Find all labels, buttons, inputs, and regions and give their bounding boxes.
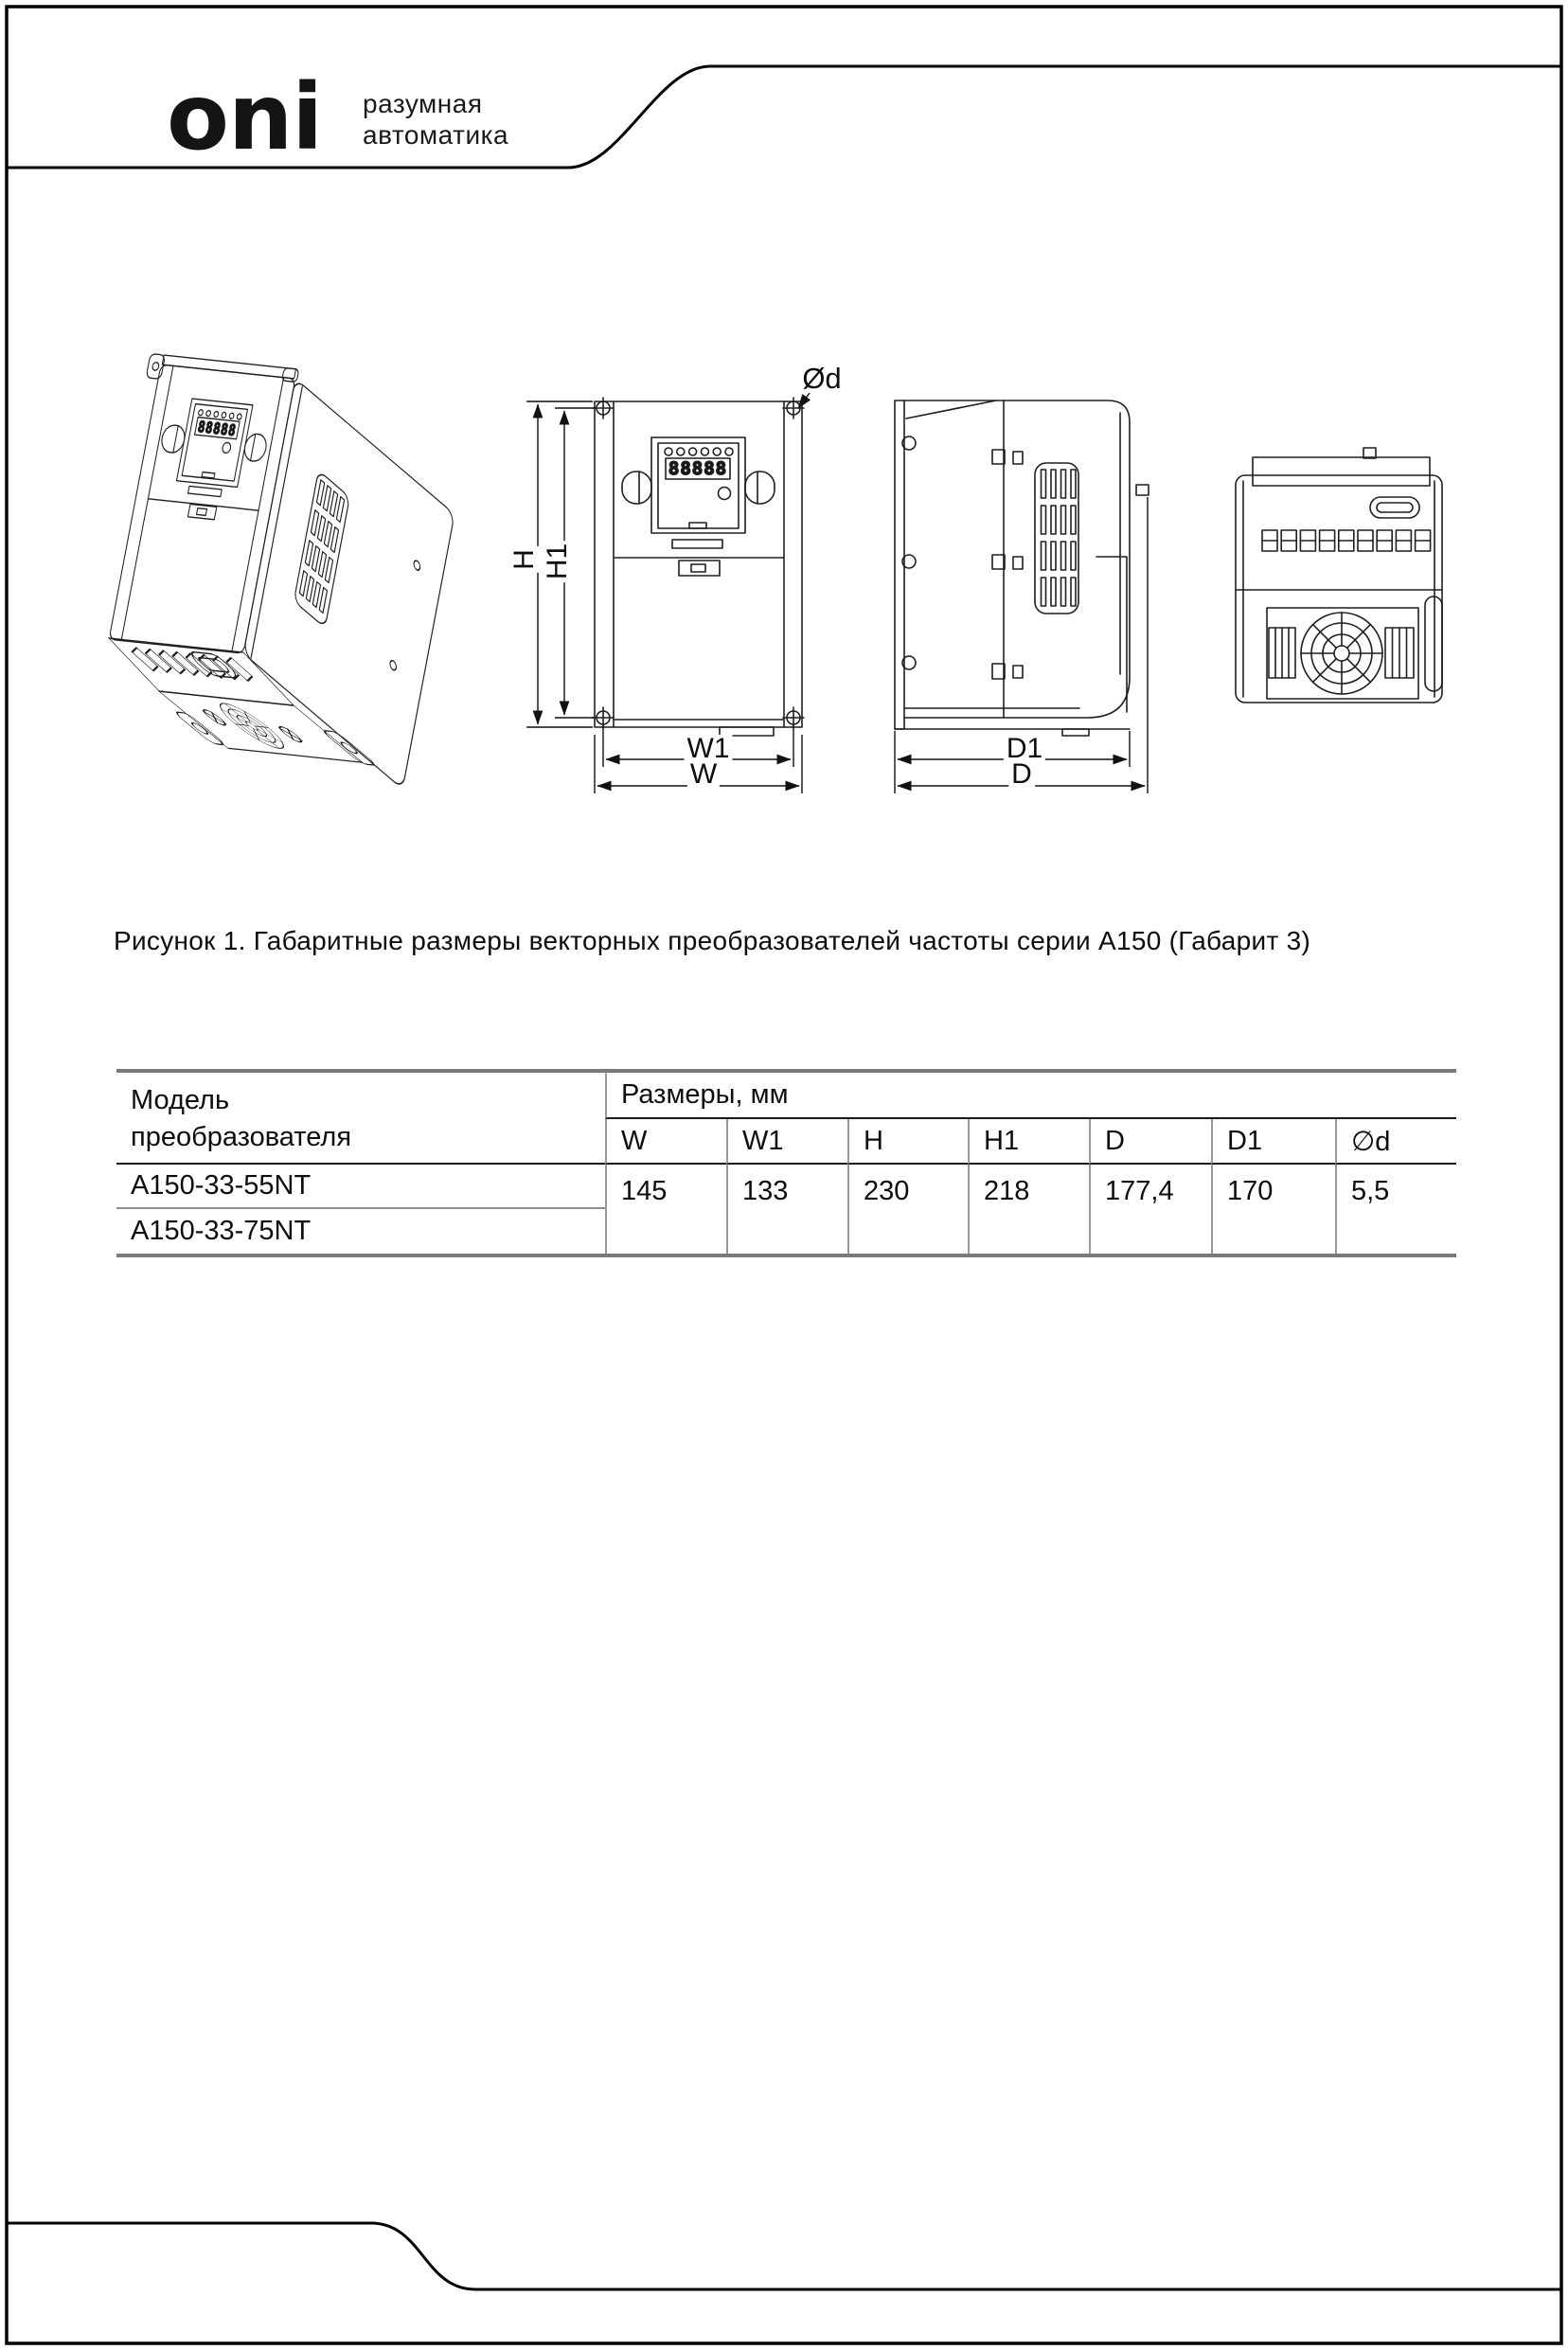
table-column-w: W: [605, 1119, 726, 1165]
brand-tagline-line1: разумная: [363, 88, 508, 119]
table-column-d: D: [1089, 1119, 1211, 1165]
side-view: [895, 401, 1149, 736]
h1-dimension-label: H1: [543, 541, 572, 582]
dimensions-table: Модель преобразователя Размеры, мм W W1 …: [116, 1069, 1456, 1257]
bottom-view: [1236, 448, 1442, 703]
table-value-h1: 218: [968, 1165, 1089, 1254]
mounting-hole: [593, 707, 614, 728]
table-value-h: 230: [847, 1165, 968, 1254]
footer-divider: [8, 2223, 1561, 2289]
d-dimension-label: D: [1008, 760, 1035, 789]
iso-keypad: 88888: [176, 399, 253, 487]
brand-logo: oni: [167, 72, 322, 163]
figure-caption: Рисунок 1. Габаритные размеры векторных …: [114, 926, 1310, 956]
table-column-w1: W1: [726, 1119, 847, 1165]
table-row-model-1: A150-33-55NT: [116, 1165, 605, 1209]
brand-tagline-line2: автоматика: [363, 119, 508, 151]
table-value-diameter: 5,5: [1335, 1165, 1456, 1254]
table-row-model-2: A150-33-75NT: [116, 1209, 605, 1254]
iso-vent-grille: [294, 471, 349, 628]
table-column-d1: D1: [1211, 1119, 1335, 1165]
table-value-d: 177,4: [1089, 1165, 1211, 1254]
table-value-w1: 133: [726, 1165, 847, 1254]
table-column-h: H: [847, 1119, 968, 1165]
cooling-fan: [1301, 613, 1382, 694]
table-value-w: 145: [605, 1165, 726, 1254]
table-header-sizes: Размеры, мм: [605, 1073, 1456, 1119]
h-dimension-label: H: [510, 546, 539, 573]
front-7seg-display: 88888: [668, 458, 727, 479]
isometric-view: 88888: [97, 354, 454, 790]
front-view-dimensions: [526, 389, 812, 793]
diameter-dimension-label: Ød: [799, 365, 844, 393]
datasheet-page: 88888: [0, 0, 1568, 2350]
table-header-model: Модель преобразователя: [116, 1073, 605, 1165]
mounting-hole: [783, 707, 804, 728]
front-keypad: 88888: [651, 437, 745, 533]
front-view: 88888: [593, 398, 804, 736]
brand-tagline: разумная автоматика: [363, 88, 508, 151]
iso-7seg-display: 88888: [196, 419, 238, 440]
table-value-d1: 170: [1211, 1165, 1335, 1254]
table-column-diameter: ∅d: [1335, 1119, 1456, 1165]
w-dimension-label: W: [687, 760, 720, 789]
table-column-h1: H1: [968, 1119, 1089, 1165]
